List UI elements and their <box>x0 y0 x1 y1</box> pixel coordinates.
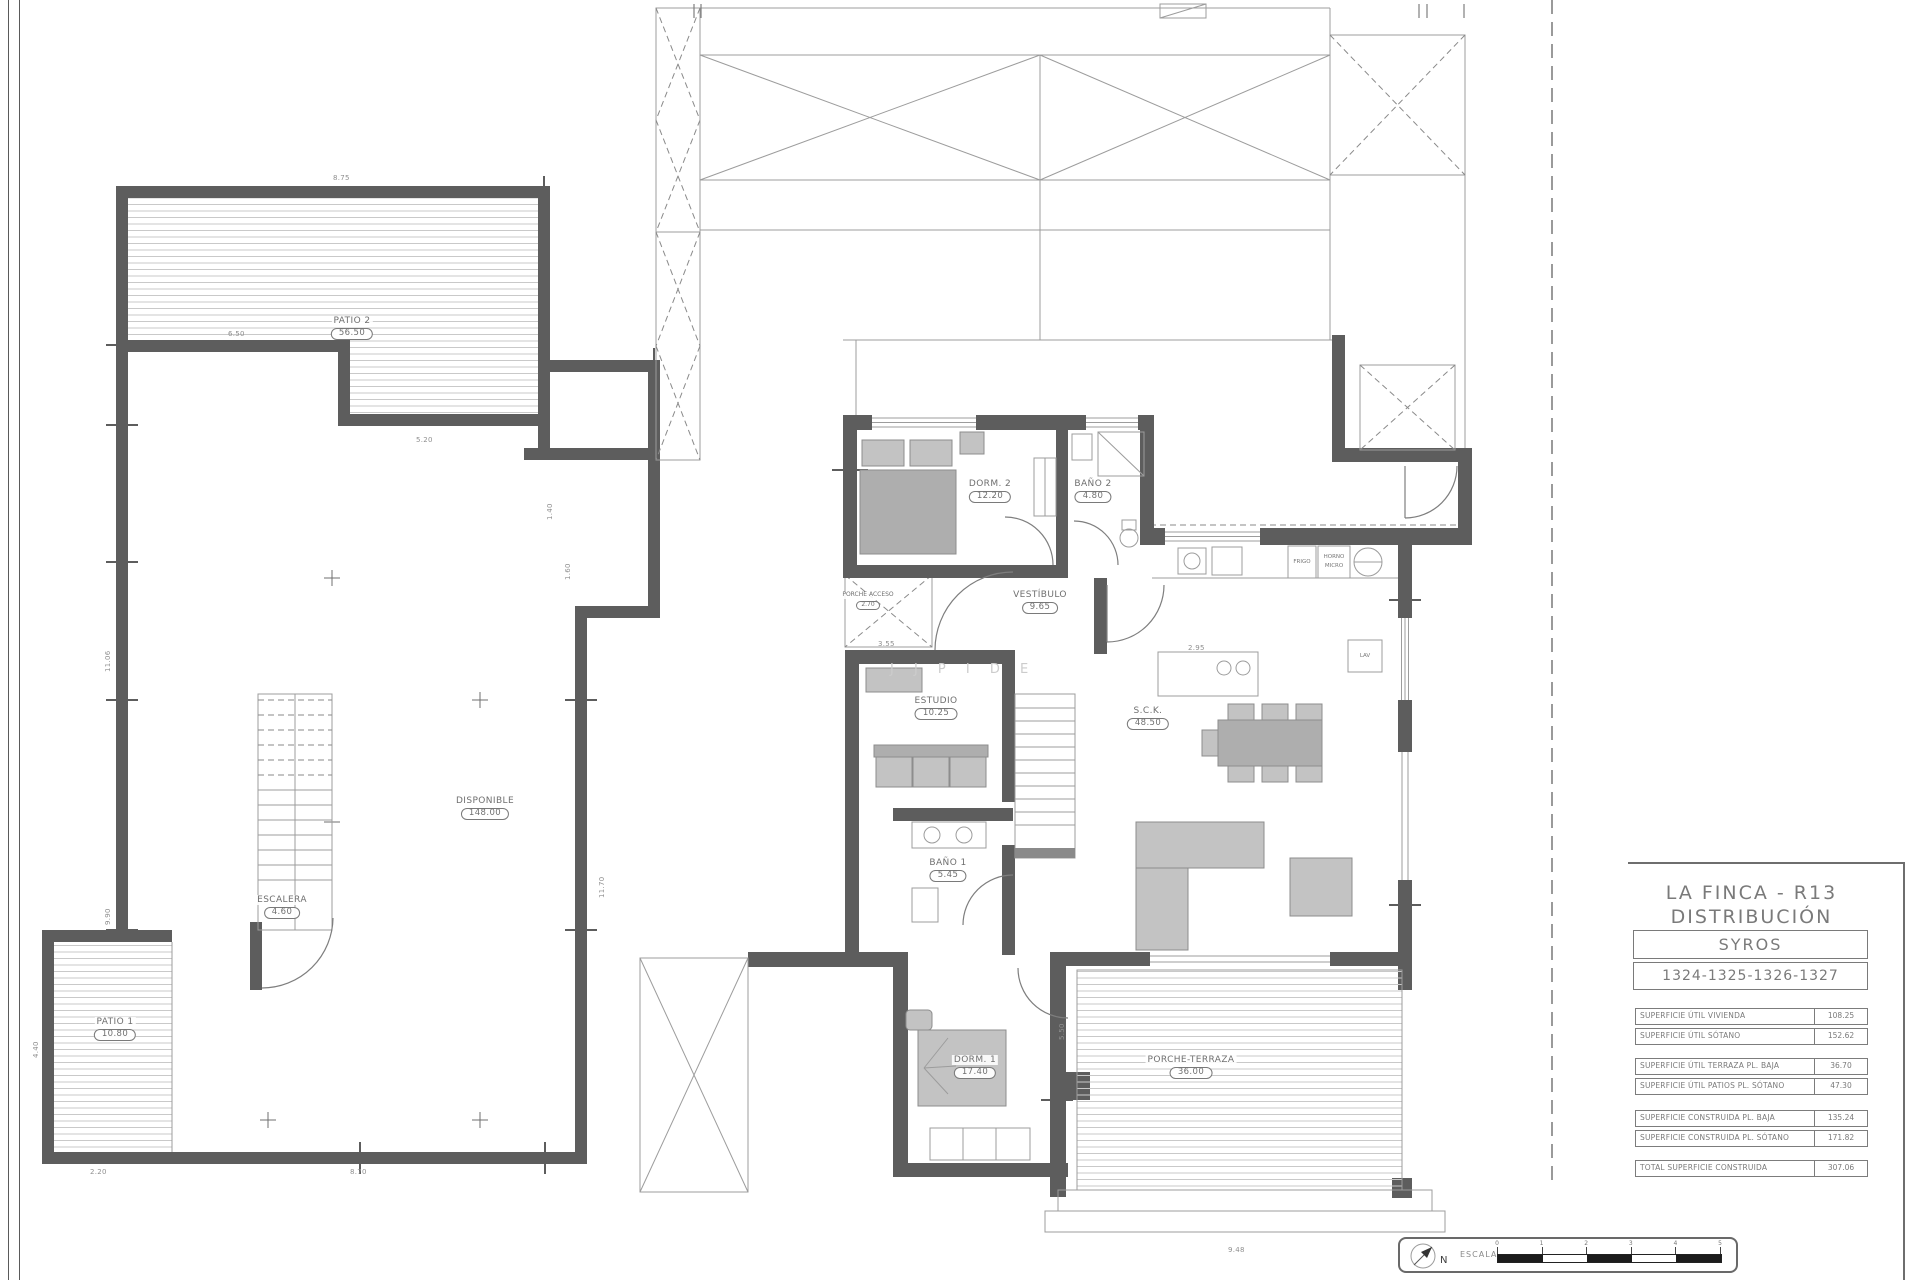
north-label: N <box>1440 1255 1447 1266</box>
room-label-bano1: BAÑO 1 5.45 <box>927 858 968 882</box>
unit-numbers: 1324-1325-1326-1327 <box>1633 962 1868 990</box>
dimension-text: 11.06 <box>104 650 112 672</box>
dimension-text: 5.50 <box>1058 1023 1066 1040</box>
dimension-text: 6.50 <box>228 330 245 338</box>
laundry-label: LAV <box>1360 653 1370 659</box>
dimension-text: 5.20 <box>416 436 433 444</box>
title-block-frame-line <box>1628 862 1905 864</box>
room-label-patio1: PATIO 1 10.80 <box>94 1017 136 1041</box>
room-label-vestibulo: VESTÍBULO 9.65 <box>1011 590 1069 614</box>
dimension-text: 2.20 <box>90 1168 107 1176</box>
oven-label: HORNO <box>1324 554 1345 560</box>
scale-bar: N ESCALA 0 1 2 3 4 5 <box>1398 1237 1738 1273</box>
vanity-icon <box>912 822 986 848</box>
area-table-exterior: SUPERFICIE ÚTIL TERRAZA PL. BAJA 36.70 S… <box>1635 1058 1868 1098</box>
door-arc <box>262 918 333 988</box>
room-label-dorm2: DORM. 2 12.20 <box>967 479 1013 503</box>
room-label-escalera: ESCALERA 4.60 <box>255 895 309 919</box>
scale-tick-label: 2 <box>1584 1240 1588 1247</box>
title-block-frame-line <box>1903 862 1905 1280</box>
kitchen-counter <box>1152 546 1398 696</box>
terrace-hatch <box>1077 970 1402 1190</box>
table-row: TOTAL SUPERFICIE CONSTRUIDA 307.06 <box>1635 1160 1868 1177</box>
graphic-scale <box>1497 1254 1722 1263</box>
kitchen-island-icon <box>1158 652 1258 696</box>
patio1-hatch <box>54 942 172 1152</box>
dimension-text: 8.75 <box>333 174 350 182</box>
area-table-construida: SUPERFICIE CONSTRUIDA PL. BAJA 135.24 SU… <box>1635 1110 1868 1150</box>
table-row: SUPERFICIE ÚTIL PATIOS PL. SÓTANO 47.30 <box>1635 1078 1868 1095</box>
toilet-icon <box>1120 529 1138 547</box>
sofa-icon <box>866 668 988 787</box>
sheet-tick-marks <box>694 4 1464 18</box>
dimension-text: 1.40 <box>546 503 554 520</box>
area-table-total: TOTAL SUPERFICIE CONSTRUIDA 307.06 <box>1635 1160 1868 1180</box>
floor-plan-sheet: { "title_block": { "project": "LA FINCA … <box>0 0 1920 1280</box>
room-label-porche-acceso: PORCHE ACCESO 2.70 <box>840 592 896 610</box>
dimension-text: 4.40 <box>32 1041 40 1058</box>
north-arrow-icon <box>1408 1241 1438 1271</box>
fridge-label: FRIGO <box>1293 559 1310 565</box>
scale-tick-label: 4 <box>1673 1240 1677 1247</box>
sink-icon <box>1178 548 1206 574</box>
dimension-text: 1.60 <box>564 563 572 580</box>
room-label-porche-terraza: PORCHE-TERRAZA 36.00 <box>1146 1055 1237 1079</box>
table-row: SUPERFICIE ÚTIL VIVIENDA 108.25 <box>1635 1008 1868 1025</box>
model-name: SYROS <box>1633 930 1868 959</box>
dimension-text: 11.70 <box>598 876 606 898</box>
table-row: SUPERFICIE ÚTIL SÓTANO 152.62 <box>1635 1028 1868 1045</box>
door-arc <box>1405 466 1457 518</box>
room-label-disponible: DISPONIBLE 148.00 <box>454 796 516 820</box>
plan-linework <box>0 0 1920 1280</box>
project-title: LA FINCA - R13 <box>1635 882 1868 904</box>
dimension-text: 3.55 <box>878 640 895 648</box>
shower-icon <box>912 888 938 922</box>
dimension-text: 8.70 <box>350 1168 367 1176</box>
ground-plan <box>640 0 1552 1232</box>
room-label-bano2: BAÑO 2 4.80 <box>1072 479 1113 503</box>
micro-label: MICRO <box>1325 563 1343 569</box>
bed-icon <box>860 432 984 554</box>
scale-tick-label: 1 <box>1540 1240 1544 1247</box>
scale-tick-label: 0 <box>1495 1240 1499 1247</box>
carport-outline <box>640 958 748 1192</box>
cooktop-icon <box>1212 547 1242 575</box>
room-label-sck: S.C.K. 48.50 <box>1127 706 1169 730</box>
table-row: SUPERFICIE CONSTRUIDA PL. SÓTANO 171.82 <box>1635 1130 1868 1147</box>
scale-tick-label: 3 <box>1629 1240 1633 1247</box>
watermark-text: J J P I D E <box>890 662 1036 677</box>
scale-label: ESCALA <box>1460 1250 1497 1259</box>
grid-cross-marks <box>260 570 488 1128</box>
dining-table-icon <box>1202 704 1322 782</box>
room-label-patio2: PATIO 2 56.50 <box>331 316 373 340</box>
scale-tick-label: 5 <box>1718 1240 1722 1247</box>
bed-icon <box>906 1010 1030 1160</box>
table-row: SUPERFICIE ÚTIL TERRAZA PL. BAJA 36.70 <box>1635 1058 1868 1075</box>
sink-icon <box>1072 434 1092 460</box>
terrace-step <box>1045 1211 1445 1232</box>
dimension-text: 9.48 <box>1228 1246 1245 1254</box>
sheet-subtitle: DISTRIBUCIÓN <box>1635 906 1868 928</box>
sofa-icon <box>1136 822 1352 950</box>
dimension-text: 2.95 <box>1188 644 1205 652</box>
dimension-text: 9.90 <box>104 908 112 925</box>
room-label-dorm1: DORM. 1 17.40 <box>952 1055 998 1079</box>
room-label-estudio: ESTUDIO 10.25 <box>913 696 960 720</box>
terrace-step <box>1058 1190 1432 1211</box>
stairs-icon <box>1015 694 1075 858</box>
area-table-util: SUPERFICIE ÚTIL VIVIENDA 108.25 SUPERFIC… <box>1635 1008 1868 1048</box>
table-row: SUPERFICIE CONSTRUIDA PL. BAJA 135.24 <box>1635 1110 1868 1127</box>
